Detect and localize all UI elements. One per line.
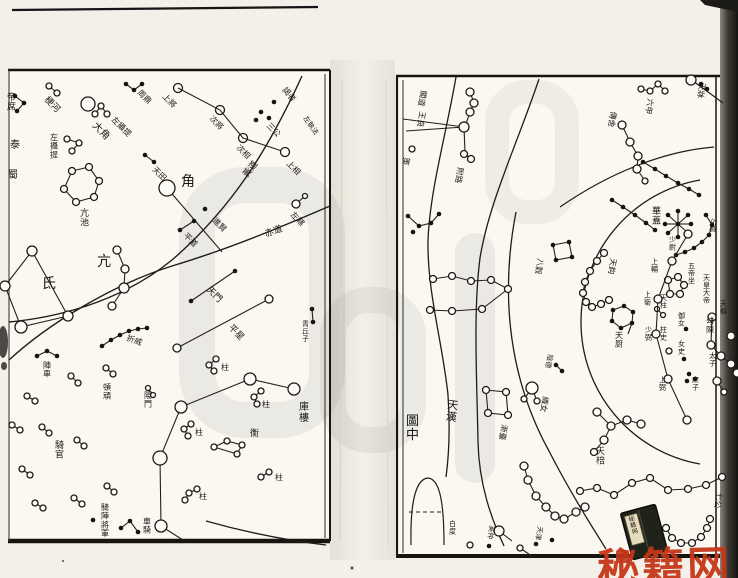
star-dot (676, 209, 681, 214)
constellation-label: 白度 (449, 519, 456, 536)
star-circle (517, 545, 523, 551)
star-circle (449, 273, 456, 280)
star-dot (686, 213, 691, 218)
star-circle (121, 265, 129, 273)
star-dot (653, 167, 658, 172)
star-circle (623, 416, 631, 424)
star-circle (461, 151, 468, 158)
star-circle (633, 165, 641, 173)
star-dot (619, 326, 624, 331)
star-circle (288, 383, 300, 395)
constellation-label: 騎陣將軍 (101, 502, 109, 538)
star-dot (554, 258, 559, 263)
star-dot (128, 519, 133, 524)
star-dot (429, 221, 434, 226)
star-circle (292, 200, 300, 208)
star-circle (258, 388, 264, 394)
star-dot (687, 372, 692, 377)
star-dot (567, 240, 572, 245)
star-circle (251, 394, 257, 400)
star-circle (589, 304, 596, 311)
star-circle (600, 436, 608, 444)
star-dot (622, 304, 627, 309)
star-circle (686, 75, 696, 85)
star-dot (189, 299, 194, 304)
star-circle (0, 281, 10, 291)
ink-blotch (351, 567, 354, 570)
star-dot (610, 319, 615, 324)
star-circle (188, 421, 194, 427)
star-circle (598, 301, 605, 308)
star-circle (560, 515, 568, 523)
star-circle (104, 111, 110, 117)
star-circle (175, 401, 187, 413)
star-circle (611, 492, 618, 499)
star-dot (666, 231, 671, 236)
star-circle (618, 121, 626, 129)
star-circle (526, 382, 538, 394)
constellation-上弼: 上弼 (659, 375, 666, 392)
star-dot (145, 326, 150, 331)
star-dot (136, 327, 141, 332)
star-circle (81, 97, 95, 111)
star-dot (140, 82, 145, 87)
star-circle (86, 164, 93, 171)
star-circle (69, 168, 76, 175)
star-circle (470, 99, 478, 107)
star-circle (92, 111, 98, 117)
star-circle (211, 368, 217, 374)
star-dot (417, 224, 422, 229)
star-dot (687, 187, 692, 192)
star-circle (707, 341, 715, 349)
star-circle (27, 472, 33, 478)
star-circle (572, 508, 580, 516)
constellation-label: 柱 (221, 362, 229, 372)
star-circle (69, 148, 75, 154)
star-circle (27, 246, 37, 256)
star-circle (703, 482, 710, 489)
constellation-label: 少弼 (645, 326, 652, 342)
star-dot (272, 100, 277, 105)
constellation-label: 騎官 (55, 439, 64, 461)
star-circle (224, 438, 230, 444)
star-circle (79, 501, 85, 507)
star-dot (704, 213, 709, 218)
star-circle (75, 380, 81, 386)
star-circle (40, 505, 46, 511)
star-circle (173, 344, 181, 352)
star-circle (239, 442, 245, 448)
star-dot (254, 118, 259, 123)
star-circle (468, 156, 475, 163)
star-circle (542, 503, 550, 511)
constellation-label: 柱 (199, 491, 207, 501)
star-circle (265, 295, 273, 303)
star-circle (153, 451, 167, 465)
star-circle (580, 290, 587, 297)
star-dot (119, 526, 124, 531)
star-circle (91, 194, 98, 201)
star-circle (110, 371, 116, 377)
constellation-label: 柱 (195, 427, 203, 437)
star-dot (411, 230, 416, 235)
constellation-label: 柱 (262, 399, 270, 409)
star-circle (213, 356, 219, 362)
star-dot (560, 369, 565, 374)
star-dot (676, 222, 681, 227)
star-circle (111, 489, 117, 495)
star-dot (192, 219, 197, 224)
constellation-label: 天皇大帝 (703, 274, 710, 305)
star-circle (76, 140, 82, 146)
star-circle (281, 148, 290, 157)
star-dot (22, 101, 27, 106)
star-dot (310, 307, 315, 312)
star-circle (684, 230, 692, 238)
star-circle (104, 483, 110, 489)
constellation-蜀: 蜀 (8, 169, 18, 181)
star-circle (32, 398, 38, 404)
star-circle (727, 360, 735, 368)
star-circle (485, 410, 492, 417)
constellation-label: 陽門 (144, 391, 152, 409)
star-circle (54, 90, 60, 96)
star-circle (468, 278, 475, 285)
star-circle (505, 286, 512, 293)
star-circle (534, 398, 540, 404)
constellation-泰: 泰 (10, 138, 20, 151)
star-dot (551, 243, 556, 248)
star-circle (68, 373, 74, 379)
star-circle (727, 332, 735, 340)
ink-blotch (62, 560, 64, 562)
star-dot (406, 214, 411, 219)
star-circle (642, 178, 648, 184)
star-dot (664, 174, 669, 179)
star-circle (185, 433, 191, 439)
star-circle (155, 520, 167, 532)
constellation-label: 柱 (275, 472, 283, 482)
star-circle (593, 408, 601, 416)
star-circle (81, 443, 87, 449)
star-circle (594, 258, 601, 265)
constellation-label: 上衛 (644, 290, 651, 307)
star-circle (19, 466, 25, 472)
star-circle (583, 299, 590, 306)
constellation-label: 帝席 (7, 91, 16, 113)
star-circle (606, 297, 613, 304)
star-circle (681, 282, 688, 289)
constellation-label: 華蓋 (652, 205, 661, 227)
constellation-label: 左攝提 (50, 132, 58, 159)
watermark-shape (455, 233, 495, 483)
constellation-label: 陣車 (43, 360, 51, 379)
star-dot (487, 544, 492, 549)
star-circle (654, 295, 662, 303)
star-circle (488, 277, 495, 284)
star-circle (466, 88, 474, 96)
star-circle (254, 401, 260, 407)
constellation-label: 天樞 (720, 300, 727, 316)
constellation-label: 亢 (97, 253, 111, 270)
star-circle (479, 306, 486, 313)
constellation-少尉: 少尉 (669, 236, 676, 252)
star-circle (607, 422, 615, 430)
constellation-label: 角 (181, 174, 195, 190)
star-dot (267, 116, 272, 121)
star-circle (96, 178, 103, 185)
star-circle (159, 180, 175, 196)
star-circle (713, 377, 721, 385)
star-circle (63, 311, 73, 321)
star-circle (466, 108, 474, 116)
star-circle (113, 246, 121, 254)
star-circle (32, 500, 38, 506)
star-dot (55, 354, 60, 359)
star-circle (666, 348, 672, 354)
star-dot (136, 530, 141, 535)
star-dot (683, 250, 688, 255)
star-circle (629, 480, 636, 487)
star-circle (119, 283, 129, 293)
star-circle (258, 474, 264, 480)
constellation-label: 五帝坐 (688, 262, 695, 285)
constellation-label: 氐 (42, 276, 56, 292)
star-dot (311, 320, 316, 325)
star-circle (73, 199, 80, 206)
star-circle (532, 492, 540, 500)
star-circle (655, 81, 661, 87)
star-dot (700, 240, 705, 245)
star-circle (524, 476, 532, 484)
star-dot (666, 213, 671, 218)
star-dot (132, 88, 137, 93)
star-circle (61, 186, 68, 193)
constellation-label: 天棓 (596, 447, 605, 467)
constellation-圖中: 圖中 (406, 414, 419, 443)
star-circle (665, 487, 672, 494)
star-dot (233, 269, 238, 274)
star-circle (211, 444, 217, 450)
star-dot (631, 310, 636, 315)
star-circle (733, 369, 738, 377)
star-circle (103, 365, 109, 371)
constellation-label: 庫樓 (299, 400, 309, 424)
star-dot (676, 235, 681, 240)
star-circle (721, 389, 727, 395)
constellation-label: 衡 (250, 427, 259, 439)
star-circle (587, 268, 594, 275)
star-dot (152, 160, 157, 165)
star-circle (675, 274, 682, 281)
star-circle (626, 138, 634, 146)
constellation-label: 女史 (678, 339, 685, 356)
star-circle (181, 426, 187, 432)
star-dot (676, 181, 681, 186)
star-circle (683, 416, 691, 424)
constellation-label: 圖中 (406, 414, 419, 443)
star-circle (15, 321, 27, 333)
constellation-label: 勾陳 (706, 316, 714, 335)
star-circle (661, 313, 666, 318)
star-circle (577, 488, 584, 495)
star-circle (647, 88, 653, 94)
star-dot (682, 357, 687, 362)
star-circle (186, 490, 192, 496)
star-circle (409, 146, 415, 152)
star-circle (634, 152, 642, 160)
constellation-label: 泰 (10, 138, 20, 151)
star-circle (39, 424, 45, 430)
star-circle (505, 412, 512, 419)
star-circle (234, 451, 240, 457)
star-dot (689, 222, 694, 227)
star-dot (610, 198, 615, 203)
star-chart-svg: 帝席泰蜀梗河大角左攝提左攝提周鼎上將次將次相上相三公謁者左執法角天田進賢平道黃道… (0, 0, 738, 578)
constellation-label: 御女 (678, 311, 685, 328)
constellation-label: 車騎 (143, 516, 151, 535)
star-circle (719, 474, 726, 481)
star-circle (108, 302, 116, 310)
star-circle (667, 291, 674, 298)
star-circle (244, 373, 256, 385)
star-circle (98, 103, 104, 109)
constellation-白度: 白度 (449, 519, 456, 536)
star-circle (581, 503, 589, 511)
star-circle (64, 136, 70, 142)
star-circle (24, 393, 30, 399)
star-circle (46, 83, 52, 89)
star-dot (707, 233, 712, 238)
star-dot (554, 363, 559, 368)
constellation-label: 青丘子 (302, 319, 309, 343)
star-circle (427, 307, 434, 314)
star-circle (638, 86, 644, 92)
star-circle (677, 291, 684, 298)
star-circle (9, 422, 15, 428)
star-circle (182, 497, 188, 503)
star-dot (100, 344, 105, 349)
star-circle (449, 308, 456, 315)
star-dot (663, 222, 668, 227)
star-dot (644, 221, 649, 226)
star-circle (520, 462, 528, 470)
constellation-上衛: 上衛 (644, 290, 651, 307)
star-circle (663, 525, 670, 532)
constellation-label: 上弼 (659, 375, 666, 392)
star-circle (704, 525, 711, 532)
star-dot (697, 193, 702, 198)
star-circle (717, 352, 725, 360)
star-circle (503, 389, 510, 396)
star-dot (203, 207, 208, 212)
star-dot (611, 308, 616, 313)
star-circle (637, 420, 645, 428)
star-dot (259, 110, 264, 115)
star-dot (178, 228, 183, 233)
star-circle (647, 475, 654, 482)
star-circle (74, 437, 80, 443)
star-circle (601, 250, 608, 257)
site-watermark-stamp: 秘籍网 (596, 532, 733, 578)
star-circle (652, 330, 660, 338)
star-dot (621, 205, 626, 210)
star-circle (467, 542, 473, 548)
constellation-label: 策 (401, 157, 412, 167)
star-dot (109, 338, 114, 343)
star-dot (630, 321, 635, 326)
star-dot (653, 228, 658, 233)
star-circle (206, 362, 212, 368)
star-dot (534, 542, 539, 547)
star-dot (641, 160, 646, 165)
constellation-label: 亢池 (80, 207, 89, 229)
constellation-label: 少尉 (669, 236, 676, 252)
star-dot (685, 379, 690, 384)
constellation-label: 柱史 (660, 325, 667, 342)
star-dot (633, 213, 638, 218)
star-dot (143, 153, 148, 158)
star-circle (685, 486, 692, 493)
star-circle (551, 512, 559, 520)
star-circle (594, 485, 601, 492)
star-circle (17, 427, 23, 433)
star-circle (459, 122, 469, 132)
star-dot (550, 538, 555, 543)
constellation-label: 蜀 (8, 169, 18, 181)
page-edge-shadow (720, 0, 738, 578)
star-circle (582, 279, 589, 286)
star-dot (692, 246, 697, 251)
star-circle (146, 386, 151, 391)
star-circle (266, 469, 272, 475)
star-circle (303, 194, 308, 199)
ink-blotch (1, 362, 7, 370)
star-circle (430, 276, 437, 283)
star-dot (35, 354, 40, 359)
constellation-上輔: 上輔 (651, 257, 658, 274)
constellation-label: 上輔 (651, 257, 658, 274)
star-circle (707, 516, 714, 523)
constellation-label: 天厨 (615, 331, 623, 349)
star-dot (124, 82, 129, 87)
constellation-label: 頓頑 (103, 382, 111, 401)
constellation-label: 庶子 (692, 375, 699, 392)
scanned-star-chart-page: 帝席泰蜀梗河大角左攝提左攝提周鼎上將次將次相上相三公謁者左執法角天田進賢平道黃道… (0, 0, 738, 578)
star-circle (521, 396, 527, 402)
star-circle (483, 387, 490, 394)
star-dot (118, 333, 123, 338)
star-circle (46, 430, 52, 436)
constellation-label: 太子 (709, 351, 716, 368)
star-dot (570, 255, 575, 260)
star-circle (668, 257, 676, 265)
star-dot (91, 518, 96, 523)
constellation-少弼: 少弼 (645, 326, 652, 342)
star-circle (662, 88, 668, 94)
star-circle (71, 495, 77, 501)
star-dot (437, 212, 442, 217)
star-dot (45, 349, 50, 354)
